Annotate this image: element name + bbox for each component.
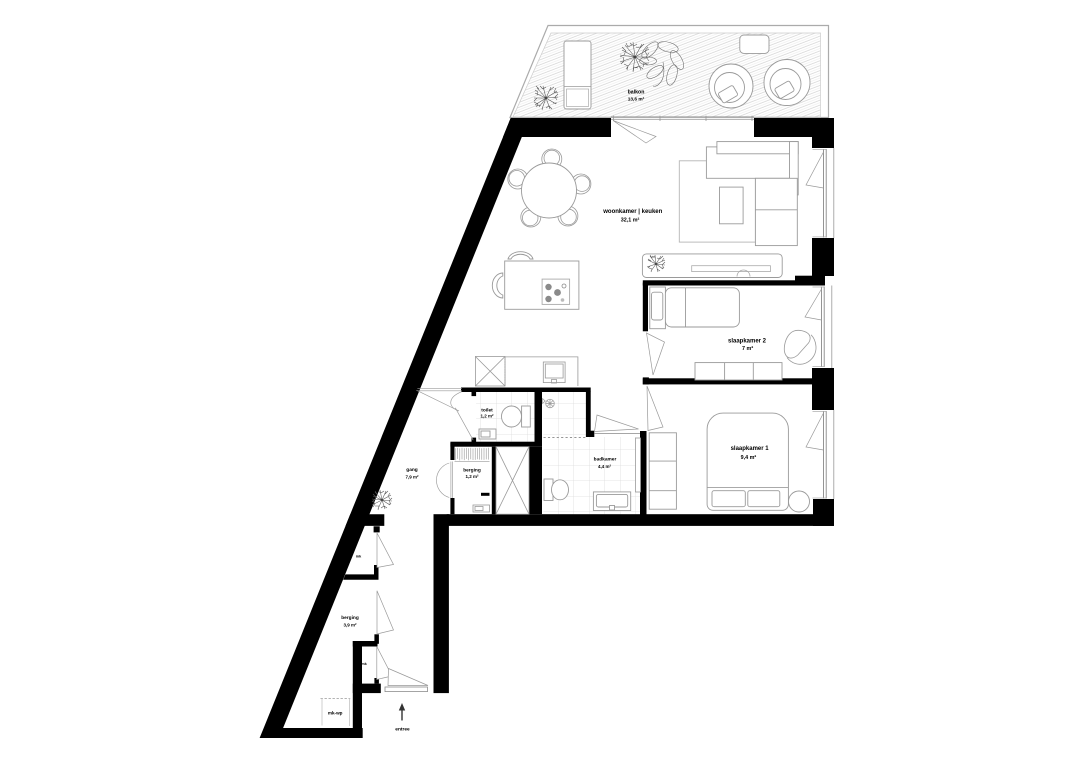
svg-text:1,2 m²: 1,2 m² [480,414,494,419]
svg-text:balkon: balkon [628,90,645,96]
svg-text:3,9 m²: 3,9 m² [343,623,357,628]
svg-text:32,1 m²: 32,1 m² [621,218,640,224]
svg-text:woonkamer | keuken: woonkamer | keuken [602,209,662,215]
svg-text:7 m²: 7 m² [742,346,753,352]
svg-text:7,9 m²: 7,9 m² [405,475,419,480]
svg-text:slaapkamer 1: slaapkamer 1 [731,446,770,452]
svg-text:slaapkamer 2: slaapkamer 2 [728,339,767,345]
svg-text:mk: mk [356,555,362,559]
svg-text:4,4 m²: 4,4 m² [598,464,612,469]
svg-text:entree: entree [395,727,410,733]
svg-text:13,6 m²: 13,6 m² [628,97,645,103]
svg-text:9,4 m²: 9,4 m² [741,455,757,461]
svg-text:gang: gang [406,468,418,473]
svg-text:badkamer: badkamer [594,457,617,463]
svg-text:1,2 m²: 1,2 m² [465,474,479,479]
svg-text:berging: berging [341,615,359,621]
svg-text:mk-wp: mk-wp [328,711,343,716]
svg-text:berging: berging [463,468,481,474]
svg-text:mk: mk [361,662,367,666]
